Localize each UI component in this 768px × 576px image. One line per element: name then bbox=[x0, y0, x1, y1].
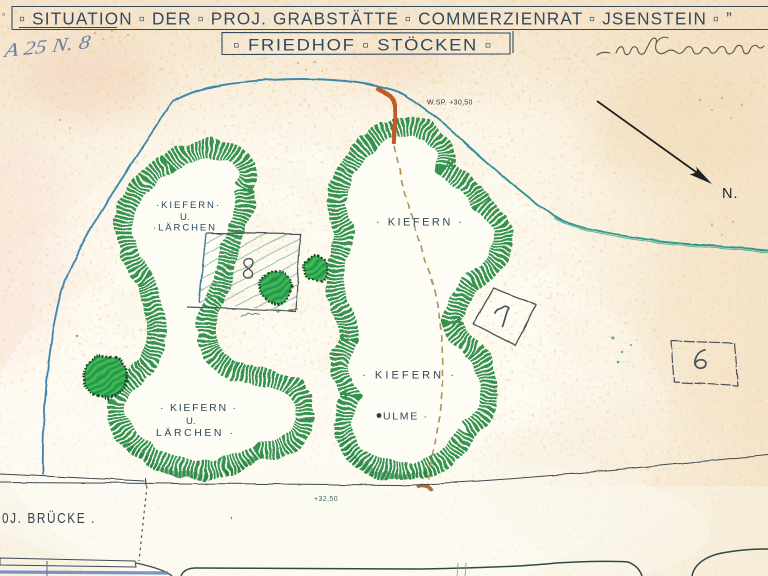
svg-text:·LÄRCHEN: ·LÄRCHEN bbox=[153, 223, 215, 234]
svg-text:U.: U. bbox=[180, 212, 190, 223]
svg-text:W.SP. +30,50: W.SP. +30,50 bbox=[427, 100, 473, 107]
svg-text:·KIEFERN·: ·KIEFERN· bbox=[156, 200, 219, 211]
svg-text:0J. BRÜCKE .: 0J. BRÜCKE . bbox=[2, 509, 96, 527]
svg-text:U.: U. bbox=[186, 416, 196, 427]
svg-text:▫ SITUATION ▫ DER ▫ PROJ. GRAB: ▫ SITUATION ▫ DER ▫ PROJ. GRABSTÄTTE ▫ C… bbox=[19, 9, 733, 29]
svg-text:· KIEFERN ·: · KIEFERN · bbox=[362, 370, 454, 382]
svg-text:▫: ▫ bbox=[2, 9, 5, 19]
svg-text:,: , bbox=[230, 510, 233, 521]
svg-text:▫ FRIEDHOF ▫ STÖCKEN ▫: ▫ FRIEDHOF ▫ STÖCKEN ▫ bbox=[233, 37, 493, 55]
svg-text:· KIEFERN ·: · KIEFERN · bbox=[376, 217, 462, 229]
svg-text:+32,50: +32,50 bbox=[314, 496, 338, 503]
svg-text:ULME ·: ULME · bbox=[383, 411, 427, 423]
svg-text:LÄRCHEN ·: LÄRCHEN · bbox=[156, 427, 233, 439]
svg-text:N.: N. bbox=[722, 186, 739, 202]
svg-text:· KIEFERN ·: · KIEFERN · bbox=[160, 402, 236, 414]
